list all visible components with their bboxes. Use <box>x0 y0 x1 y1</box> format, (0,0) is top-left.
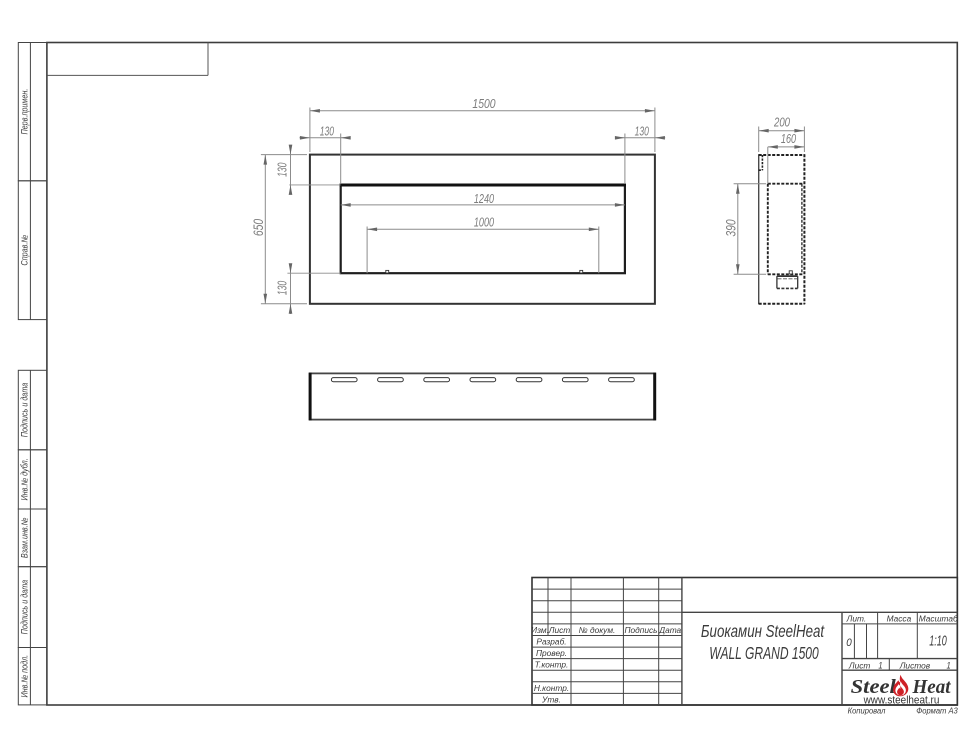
svg-text:Steel: Steel <box>851 675 896 697</box>
svg-text:Формат А3: Формат А3 <box>916 706 958 715</box>
svg-text:Справ.№: Справ.№ <box>20 235 30 266</box>
svg-text:Масса: Масса <box>887 613 912 623</box>
svg-text:0: 0 <box>846 638 852 650</box>
svg-text:1000: 1000 <box>474 216 495 230</box>
svg-text:130: 130 <box>320 125 335 139</box>
svg-text:www.steelheat.ru: www.steelheat.ru <box>863 695 940 706</box>
svg-text:130: 130 <box>276 280 290 295</box>
svg-text:1: 1 <box>946 659 950 670</box>
svg-text:Масштаб: Масштаб <box>919 613 959 623</box>
svg-text:Лит.: Лит. <box>846 613 867 623</box>
svg-text:390: 390 <box>723 219 739 236</box>
svg-text:Изм.: Изм. <box>531 625 549 635</box>
svg-text:1240: 1240 <box>474 192 495 206</box>
svg-text:1:10: 1:10 <box>929 632 947 649</box>
svg-text:Утв.: Утв. <box>541 694 561 704</box>
svg-text:Подпись и дата: Подпись и дата <box>20 579 30 634</box>
svg-text:160: 160 <box>781 132 797 146</box>
svg-text:650: 650 <box>250 219 266 236</box>
svg-text:Биокамин SteelHeat: Биокамин SteelHeat <box>701 622 825 641</box>
svg-text:Перв.примен.: Перв.примен. <box>20 89 30 135</box>
svg-text:200: 200 <box>773 116 790 130</box>
svg-text:Подпись и дата: Подпись и дата <box>20 382 30 437</box>
svg-text:1500: 1500 <box>472 97 496 111</box>
svg-text:Инв.№ подл.: Инв.№ подл. <box>20 655 30 698</box>
svg-text:130: 130 <box>276 162 290 177</box>
svg-text:Дата: Дата <box>658 625 681 635</box>
svg-text:Лист: Лист <box>548 625 570 635</box>
svg-text:WALL GRAND 1500: WALL GRAND 1500 <box>709 644 819 664</box>
svg-text:Т.контр.: Т.контр. <box>535 659 569 669</box>
svg-text:Инв.№ дубл.: Инв.№ дубл. <box>20 458 30 500</box>
svg-text:1: 1 <box>878 659 882 670</box>
svg-text:Провер.: Провер. <box>536 648 567 658</box>
svg-text:Разраб.: Разраб. <box>536 636 566 646</box>
svg-text:Н.контр.: Н.контр. <box>534 683 569 693</box>
svg-text:130: 130 <box>635 125 650 139</box>
svg-text:Копировал: Копировал <box>848 706 886 715</box>
svg-text:Листов: Листов <box>899 660 931 670</box>
svg-text:Взам.инв.№: Взам.инв.№ <box>20 517 30 558</box>
svg-text:№ докум.: № докум. <box>579 625 616 635</box>
svg-text:Лист: Лист <box>848 660 870 670</box>
svg-text:Подпись: Подпись <box>624 625 657 635</box>
